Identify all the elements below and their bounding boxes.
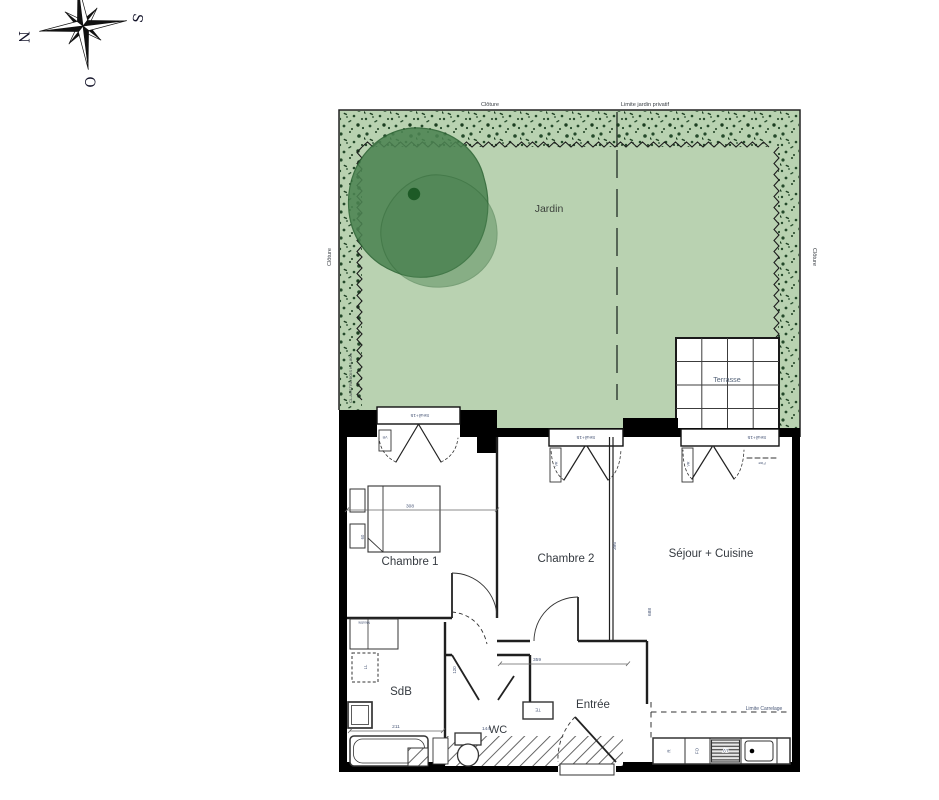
window1-seuil-label: Seuil+15 [410, 412, 429, 418]
window3-fixe-label: Fixe [758, 461, 765, 465]
floor-plan-svg: Terrasse Clôture Limite jardin privatif … [0, 0, 939, 800]
window1-shutter-box [379, 430, 391, 451]
cloture-left-label: Clôture [327, 248, 333, 266]
dim-396: 396 [612, 542, 618, 550]
dim-211: 211 [392, 724, 400, 730]
compass-north-label: N [15, 31, 31, 43]
dim-308: 308 [406, 504, 414, 510]
oven-label: FO [695, 747, 700, 754]
washing-machine-label: LL [363, 664, 368, 669]
toilet-bowl [458, 744, 479, 766]
window3-seuil-label: Seuil+15 [747, 434, 766, 440]
dim-60: 60 [360, 534, 365, 539]
nightstand-1 [350, 489, 365, 512]
room-label-wc: WC [489, 724, 507, 736]
fridge-label: R [667, 749, 672, 752]
claustra-note: CL.AUSTRA BOIS h=1.80m [348, 352, 353, 402]
kitchen-sink [745, 741, 773, 761]
window1-vr-label: VR [382, 435, 387, 439]
dim-688: 688 [647, 608, 653, 616]
sdb-cabinet [350, 619, 398, 649]
dim-359: 359 [533, 657, 541, 663]
apartment [339, 410, 800, 772]
wc-side-unit [433, 738, 448, 764]
kitchen-counter [653, 738, 790, 764]
compass-cardinal-points [34, 0, 132, 75]
limite-jardin-label: Limite jardin privatif [621, 102, 670, 108]
window2-seuil-label: Seuil+15 [576, 434, 595, 440]
wall-right [792, 428, 800, 772]
terrace: Terrasse [676, 338, 779, 432]
washbasin-tap [341, 710, 347, 720]
jardin-label: Jardin [535, 203, 564, 215]
toilet-tank [455, 733, 481, 745]
wall-top-pier [477, 410, 497, 453]
compass-west-label: O [81, 76, 97, 87]
terrace-label: Terrasse [713, 375, 741, 384]
limite-carrelage-label: Limite Carrelage [746, 706, 783, 712]
room-label-sdb: SdB [390, 686, 412, 698]
sink-tap-dot [750, 749, 755, 754]
meuble-note: Meuble [358, 621, 370, 625]
room-label-sejour: Séjour + Cuisine [669, 548, 754, 560]
electrical-panel-label: TE [535, 708, 541, 713]
cloture-top-label: Clôture [481, 102, 499, 108]
room-label-entree: Entrée [576, 699, 610, 711]
garden-area: Terrasse Clôture Limite jardin privatif … [327, 102, 817, 437]
compass-rose: N S O [15, 0, 146, 88]
washbasin-inner [352, 706, 369, 725]
tree-trunk-dot [408, 188, 420, 200]
room-label-chambre2: Chambre 2 [538, 553, 595, 565]
wall-top-c [623, 418, 678, 437]
hedge-right [778, 147, 799, 435]
floor-plan-page: Terrasse Clôture Limite jardin privatif … [0, 0, 939, 800]
dishwasher-label: LV [723, 748, 728, 753]
dim-120: 120 [452, 666, 457, 674]
compass-south-label: S [128, 12, 145, 24]
cloture-right-label: Clôture [811, 248, 817, 266]
room-label-chambre1: Chambre 1 [382, 556, 439, 568]
window3-vr-label: VR [687, 461, 691, 466]
bed [368, 486, 440, 552]
entree-threshold [560, 764, 614, 775]
window2-vr-label: VR [555, 461, 559, 466]
bath-cabinet-hatch [408, 748, 428, 766]
